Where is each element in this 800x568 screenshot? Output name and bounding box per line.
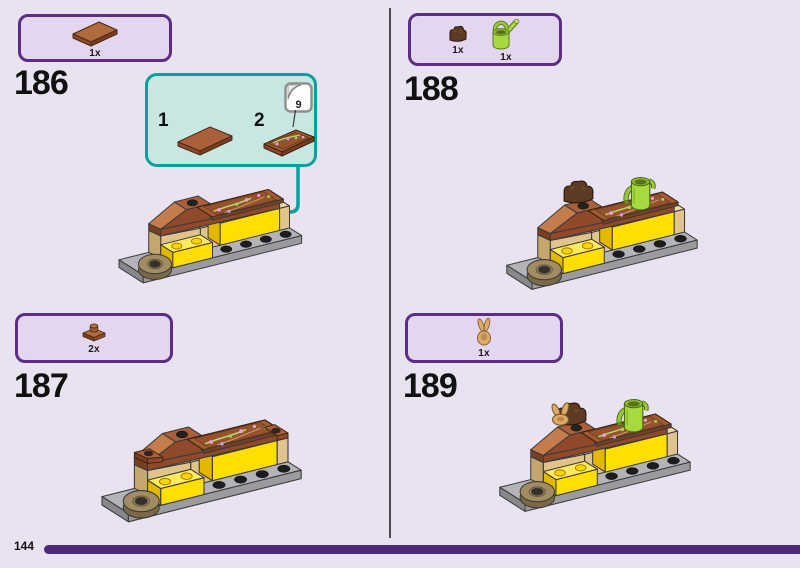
tan-rabbit-piece-icon bbox=[471, 317, 497, 347]
column-divider bbox=[389, 8, 391, 538]
sticker-sheet-icon: 9 bbox=[284, 82, 313, 113]
step-number-186: 186 bbox=[14, 66, 68, 100]
reddish-brown-tile-2x4-icon bbox=[67, 17, 123, 47]
assembly-illustration-189 bbox=[488, 352, 718, 524]
reddish-brown-plate-1x1-icon bbox=[81, 321, 107, 343]
assembly-illustration-187 bbox=[90, 355, 330, 535]
part-item: 2x bbox=[81, 321, 107, 355]
sticker-pointer-line bbox=[288, 110, 298, 128]
part-item: 1x bbox=[67, 17, 123, 59]
step-number-187: 187 bbox=[14, 369, 68, 403]
part-item: 1x bbox=[489, 17, 523, 63]
footer-progress-bar bbox=[44, 545, 800, 554]
substep-1-label: 1 bbox=[158, 110, 169, 132]
assembly-illustration-186 bbox=[108, 130, 328, 295]
step-number-189: 189 bbox=[403, 369, 457, 403]
lime-watering-can-icon bbox=[489, 17, 523, 51]
part-count: 1x bbox=[500, 52, 512, 63]
parts-box-188: 1x 1x bbox=[408, 13, 562, 66]
step-number-188: 188 bbox=[404, 72, 458, 106]
part-count: 2x bbox=[88, 344, 100, 355]
parts-box-186: 1x bbox=[18, 14, 172, 62]
part-count: 1x bbox=[89, 48, 101, 59]
page-number: 144 bbox=[14, 539, 34, 553]
dark-brown-roots-piece-icon bbox=[447, 24, 469, 44]
part-item: 1x bbox=[447, 24, 469, 56]
part-count: 1x bbox=[452, 45, 464, 56]
assembly-illustration-188 bbox=[495, 130, 725, 302]
